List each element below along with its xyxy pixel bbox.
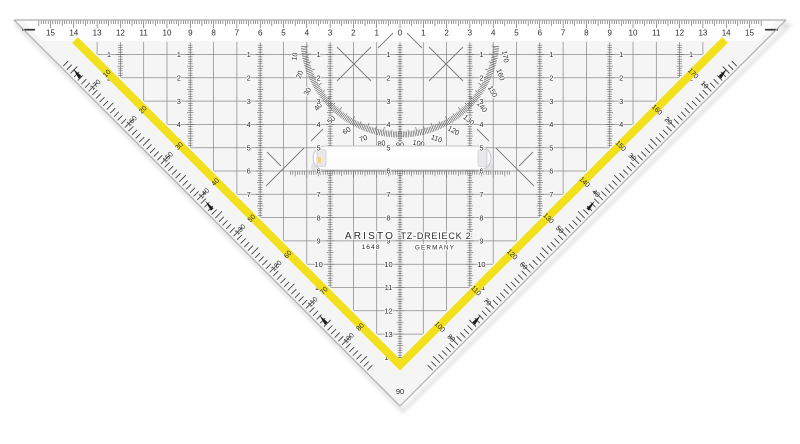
ruler-number: 9 [607,29,612,38]
ruler-number: 0 [398,29,403,38]
row-number: 7 [549,190,553,199]
row-number: 6 [386,167,390,176]
row-number: 1 [177,50,181,59]
ruler-number: 3 [468,29,473,38]
ruler-number: 4 [491,29,496,38]
ruler-number: 11 [140,29,149,38]
row-number: 3 [317,97,321,106]
degree-label: 10 [289,52,299,61]
row-number: 7 [247,190,251,199]
row-number: 8 [386,213,390,222]
row-number: 13 [384,330,392,339]
ruler-number: 10 [163,29,172,38]
row-number: 3 [386,97,390,106]
ruler-number: 11 [652,29,661,38]
row-number: 3 [177,97,181,106]
tz-dreieck-2-ruler: 1020304050607080901001101201301401501601… [0,0,800,444]
row-number: 8 [317,213,321,222]
row-number: 5 [386,143,390,152]
row-number: 6 [549,167,553,176]
product-photo-stage: 1020304050607080901001101201301401501601… [0,0,800,444]
row-number: 5 [317,143,321,152]
row-number: 4 [177,120,181,129]
row-number: 9 [479,237,483,246]
row-number: 1 [107,50,111,59]
row-number: 2 [549,74,553,83]
row-number: 1 [549,50,553,59]
row-number: 10 [477,260,485,269]
row-number: 1 [479,50,483,59]
row-number: 3 [247,97,251,106]
ruler-number: 2 [444,29,449,38]
handle-highlight [319,150,485,159]
row-number: 11 [385,283,393,292]
row-number: 1 [386,50,390,59]
row-number: 1 [317,50,321,59]
row-number: 1 [247,50,251,59]
row-number: 4 [317,120,321,129]
ruler-number: 14 [69,29,78,38]
ruler-number: 3 [328,29,333,38]
row-number: 1 [689,50,693,59]
row-number: 7 [479,190,483,199]
row-number: 2 [317,74,321,83]
handle-glint [318,157,321,163]
row-number: 10 [314,260,322,269]
row-number: 5 [479,143,483,152]
row-number: 2 [247,74,251,83]
row-number: 6 [317,167,321,176]
row-number: 12 [384,307,392,316]
brand-name: ARISTO [345,231,395,242]
row-number: 5 [247,143,251,152]
row-number: 4 [479,120,483,129]
row-number: 1 [619,50,623,59]
handle [311,146,493,172]
ruler-number: 6 [258,29,263,38]
ruler-number: 15 [745,29,754,38]
ruler-number: 12 [675,29,684,38]
ruler-number: 4 [305,29,310,38]
ruler-number: 13 [698,29,707,38]
origin-label: GERMANY [415,245,455,252]
row-number: 4 [247,120,251,129]
row-number: 4 [619,120,623,129]
row-number: 4 [386,120,390,129]
row-number: 6 [479,167,483,176]
ruler-number: 10 [629,29,638,38]
row-number: 2 [619,74,623,83]
row-number: 2 [479,74,483,83]
row-number: 7 [386,190,390,199]
model-number: 1648 [361,244,380,251]
row-number: 3 [479,97,483,106]
ruler-number: 5 [514,29,519,38]
ruler-number: 12 [116,29,125,38]
row-number: 2 [386,74,390,83]
ruler-number: 6 [538,29,543,38]
ruler-number: 13 [93,29,102,38]
row-number: 7 [317,190,321,199]
vertex-label-group: 90 [396,387,404,396]
row-number: 10 [384,260,392,269]
row-number: 8 [479,213,483,222]
ruler-number: 8 [211,29,216,38]
ruler-number: 14 [722,29,731,38]
row-number: 3 [619,97,623,106]
row-number: 3 [549,97,553,106]
row-number: 9 [317,237,321,246]
row-number: 4 [549,120,553,129]
ruler-number: 15 [46,29,55,38]
ruler-number: 1 [374,29,379,38]
row-number: 2 [177,74,181,83]
ruler-number: 7 [561,29,566,38]
vertex-angle-label: 90 [396,387,404,396]
row-number: 5 [549,143,553,152]
ruler-number: 1 [421,29,426,38]
row-number: 6 [247,167,251,176]
ruler-number: 9 [188,29,193,38]
ruler-number: 2 [351,29,356,38]
ruler-number: 5 [281,29,286,38]
ruler-number: 8 [584,29,589,38]
product-name: TZ-DREIECK 2 [400,231,471,241]
ruler-number: 7 [235,29,240,38]
